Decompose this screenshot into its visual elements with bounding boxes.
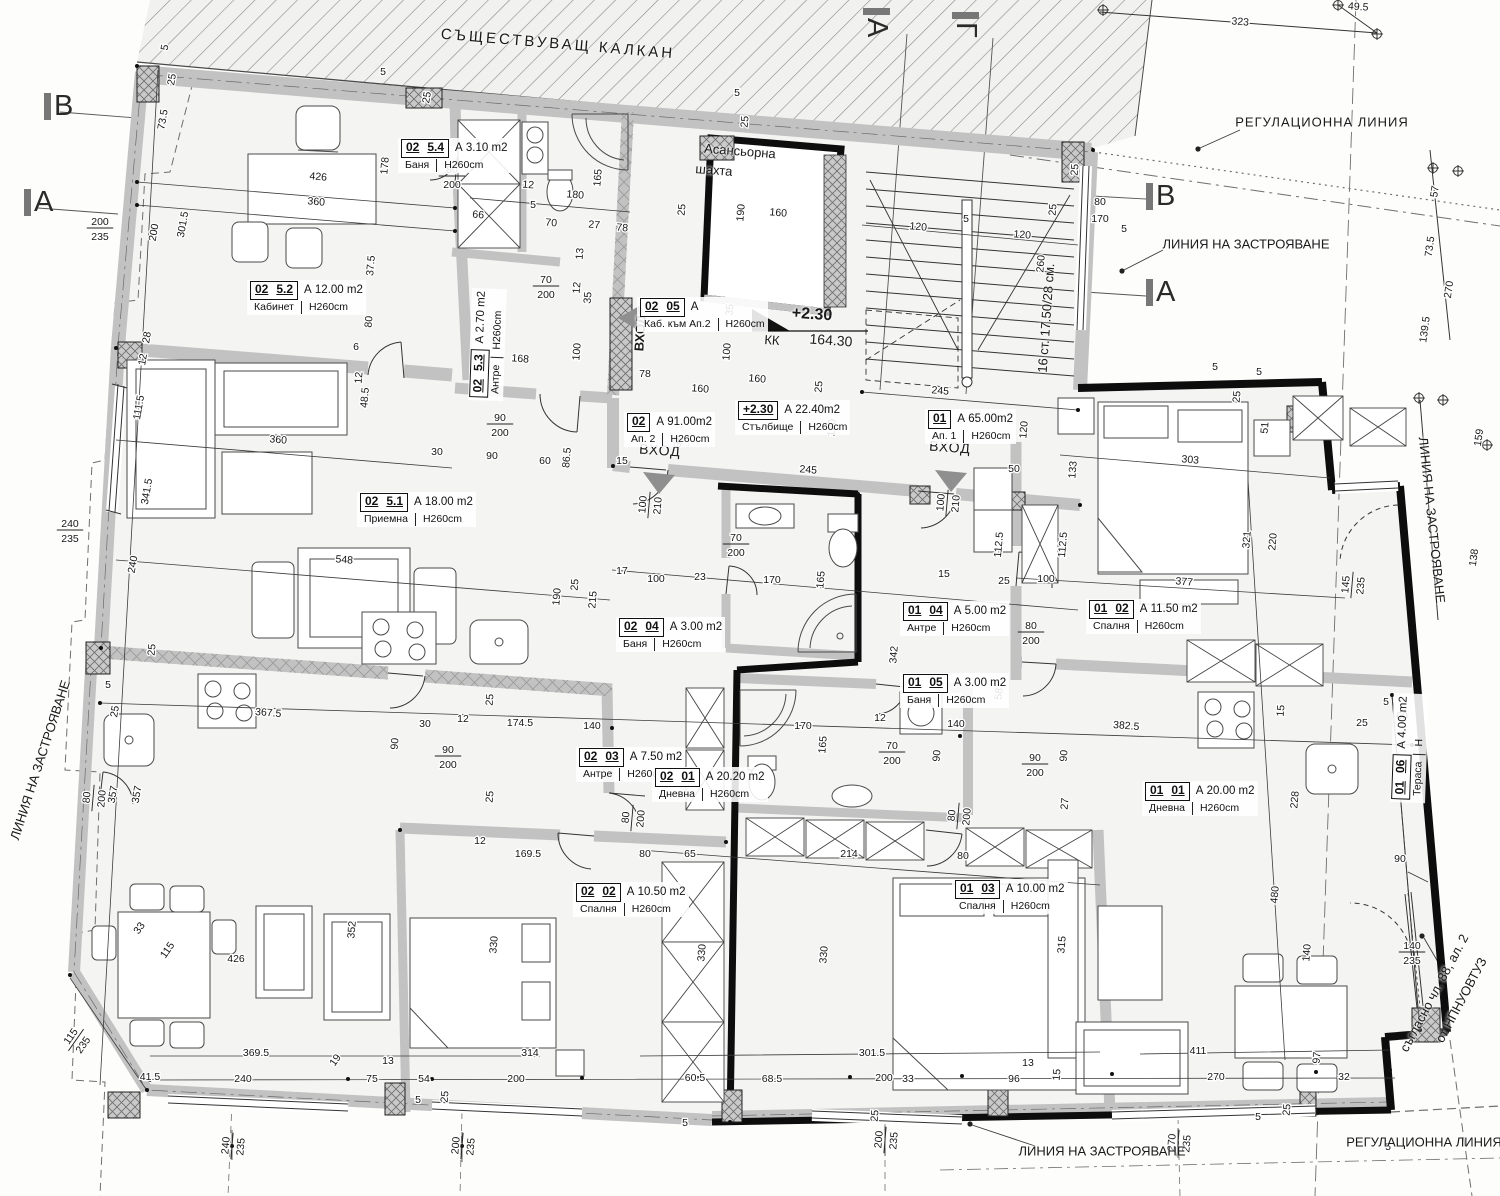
dimension-label: 240 bbox=[234, 1073, 252, 1085]
wardrobe-box bbox=[1022, 505, 1058, 583]
dimension-label: 120 bbox=[825, 418, 838, 437]
dimension-label: 377 bbox=[1175, 575, 1194, 588]
dimension-label: 25 bbox=[1356, 717, 1368, 729]
wardrobe-box bbox=[662, 942, 724, 1022]
fraction-part: 240 bbox=[219, 1136, 232, 1155]
dimension-label: 169.5 bbox=[515, 848, 541, 860]
wardrobe-box bbox=[458, 120, 520, 184]
dimension-label: 65 bbox=[684, 848, 696, 860]
dimension-label: 90 bbox=[389, 737, 402, 750]
fraction-part: 200 bbox=[449, 1136, 462, 1155]
dimension-label: 112.5 bbox=[992, 531, 1006, 558]
dimension-tick bbox=[98, 701, 102, 705]
wardrobe-box bbox=[1256, 644, 1323, 686]
dimension-label: 352 bbox=[345, 920, 358, 939]
dimension-label: 66 bbox=[472, 209, 485, 222]
fraction-part: 200 bbox=[1026, 767, 1044, 779]
dimension-label: 170 bbox=[1091, 213, 1109, 225]
dimension-label: 80 bbox=[957, 850, 969, 862]
wardrobe-box bbox=[662, 1022, 724, 1102]
dimension-tick bbox=[398, 828, 402, 832]
dimension-label: 100 bbox=[570, 342, 583, 361]
dimension-label: 139.5 bbox=[1417, 316, 1433, 344]
dimension-label: 12 bbox=[474, 835, 486, 847]
dimension-label: 140 bbox=[947, 718, 965, 730]
dimension-label: 314 bbox=[521, 1047, 539, 1059]
fraction-part: 200 bbox=[727, 547, 745, 559]
dimension-label: 382.5 bbox=[1113, 719, 1140, 733]
fraction-part: 70 bbox=[886, 740, 898, 752]
dimension-tick bbox=[430, 1077, 434, 1081]
wardrobe-box bbox=[866, 822, 924, 860]
dimension-tick bbox=[611, 464, 615, 468]
wardrobe-box bbox=[458, 184, 520, 248]
fraction-dimension: 270235 bbox=[1165, 1129, 1194, 1158]
dimension-label: 57 bbox=[1428, 185, 1442, 198]
fraction-part: 200 bbox=[91, 216, 109, 228]
dimension-label: 70 bbox=[545, 217, 558, 230]
dimension-label: 100 bbox=[1037, 573, 1055, 585]
fraction-part: 210 bbox=[651, 496, 664, 515]
fraction-part: 235 bbox=[61, 533, 79, 545]
dimension-tick bbox=[453, 229, 457, 233]
dimension-label: 369.5 bbox=[243, 1047, 269, 1059]
dimension-label: 25 bbox=[676, 203, 689, 216]
dimension-label: 548 bbox=[335, 553, 354, 566]
dimension-label: 140 bbox=[1300, 943, 1313, 962]
dimension-label: 112.5 bbox=[1056, 531, 1070, 558]
dimension-label: 90 bbox=[1394, 853, 1406, 865]
dimension-label: 12 bbox=[136, 353, 150, 367]
dimension-label: 97 bbox=[672, 435, 685, 448]
wardrobe-box bbox=[1187, 640, 1255, 682]
dimension-label: 25 bbox=[146, 643, 159, 656]
dimension-label: 54 bbox=[418, 1073, 430, 1085]
dimension-label: 25 bbox=[739, 115, 752, 128]
dimension-tick bbox=[860, 390, 864, 394]
wardrobe-box bbox=[686, 688, 724, 748]
dimension-label: 25 bbox=[813, 380, 826, 393]
dimension-tick bbox=[1078, 503, 1082, 507]
fraction-part: 145 bbox=[1339, 575, 1352, 594]
dimension-label: 25 bbox=[165, 73, 179, 87]
dimension-label: 58 bbox=[993, 687, 1006, 700]
dimension-label: 160 bbox=[769, 206, 788, 219]
dimension-label: 90 bbox=[486, 450, 498, 462]
fraction-part: 235 bbox=[1403, 955, 1421, 967]
fraction-part: 80 bbox=[620, 811, 633, 824]
dimension-tick bbox=[68, 973, 72, 977]
dimension-label: 25 bbox=[420, 91, 434, 105]
dimension-label: 28 bbox=[140, 331, 154, 345]
fraction-part: 235 bbox=[234, 1137, 247, 1156]
dimension-label: 25 bbox=[484, 790, 497, 803]
dimension-tick bbox=[724, 486, 728, 490]
floor-plan-page: 2002352402358020070200902008020010021010… bbox=[0, 0, 1500, 1196]
dimension-label: 23 bbox=[694, 571, 706, 583]
fraction-part: 200 bbox=[883, 755, 901, 767]
fraction-part: 140 bbox=[1403, 940, 1421, 952]
dimension-label: 220 bbox=[1266, 532, 1279, 551]
elevator-shaft bbox=[704, 138, 846, 312]
fraction-part: 200 bbox=[443, 179, 461, 191]
dimension-label: 6 bbox=[353, 341, 359, 353]
dimension-label: 41.5 bbox=[140, 1071, 161, 1083]
dimension-label: 321 bbox=[1240, 530, 1253, 549]
dimension-label: 68.5 bbox=[762, 1073, 783, 1085]
dimension-label: 168 bbox=[511, 352, 530, 365]
dimension-label: 5 bbox=[1212, 361, 1218, 373]
dimension-label: 245 bbox=[931, 384, 950, 397]
fraction-part: 200 bbox=[537, 289, 555, 301]
fraction-part: 200 bbox=[439, 759, 457, 771]
dimension-label: 270 bbox=[1207, 1071, 1225, 1083]
fraction-part: 100 bbox=[934, 493, 947, 512]
dimension-label: 170 bbox=[794, 720, 812, 732]
dimension-label: 13 bbox=[1022, 1057, 1034, 1069]
fraction-part: 200 bbox=[491, 427, 509, 439]
dimension-label: 140 bbox=[583, 720, 601, 732]
wardrobe-box bbox=[1293, 396, 1343, 440]
dimension-tick bbox=[1110, 1072, 1114, 1076]
dimension-label: 200 bbox=[507, 1073, 525, 1085]
dimension-label: 60.5 bbox=[685, 1072, 706, 1084]
dimension-label: 13 bbox=[382, 1055, 394, 1067]
dimension-label: 165 bbox=[591, 168, 604, 187]
dimension-label: 33 bbox=[902, 1073, 914, 1085]
dimension-label: 215 bbox=[586, 590, 599, 609]
dimension-label: 5 bbox=[1121, 223, 1127, 235]
fraction-dimension: 240235 bbox=[57, 518, 83, 545]
dimension-label: 27 bbox=[588, 219, 601, 232]
dimension-label: 160 bbox=[691, 382, 710, 395]
fraction-part: 80 bbox=[946, 809, 959, 822]
dimension-tick bbox=[848, 1075, 852, 1079]
dimension-label: 80 bbox=[639, 848, 651, 860]
dimension-tick bbox=[1445, 1030, 1449, 1034]
dimension-tick bbox=[610, 726, 614, 730]
dimension-tick bbox=[135, 180, 139, 184]
dimension-label: 170 bbox=[763, 574, 781, 586]
dimension-label: 360 bbox=[269, 433, 288, 446]
dimension-label: 5 bbox=[682, 1117, 688, 1129]
dimension-tick bbox=[99, 646, 103, 650]
dimension-label: 51 bbox=[1259, 421, 1272, 434]
dimension-label: 12 bbox=[522, 179, 535, 192]
dimension-label: 330 bbox=[487, 935, 500, 954]
dimension-label: 5 bbox=[105, 679, 111, 691]
dimension-label: 214 bbox=[840, 848, 858, 860]
dimension-label: 5 bbox=[1255, 1111, 1261, 1123]
dimension-label: 13 bbox=[574, 247, 587, 260]
dimension-label: 27 bbox=[1059, 797, 1072, 810]
fraction-part: 100 bbox=[636, 495, 649, 514]
dimension-tick bbox=[145, 1088, 149, 1092]
dimension-label: 160 bbox=[748, 372, 767, 385]
fraction-part: 80 bbox=[1025, 620, 1037, 632]
dimension-label: 90 bbox=[1058, 749, 1071, 762]
dimension-label: 190 bbox=[734, 203, 747, 222]
fraction-part: 200 bbox=[960, 807, 973, 826]
dimension-label: 12 bbox=[353, 371, 366, 384]
dimension-tick bbox=[958, 734, 962, 738]
dimension-label: 245 bbox=[799, 463, 818, 476]
fraction-part: 200 bbox=[634, 809, 647, 828]
dimension-label: 120 bbox=[909, 220, 928, 233]
dimension-label: 100 bbox=[647, 573, 665, 585]
fraction-part: 200 bbox=[1022, 635, 1040, 647]
dimension-label: 35 bbox=[724, 303, 737, 316]
dimension-label: 15 bbox=[616, 455, 628, 467]
dimension-tick bbox=[453, 206, 457, 210]
wardrobe-box bbox=[746, 818, 804, 856]
dimension-tick bbox=[580, 1076, 584, 1080]
dimension-label: 12 bbox=[874, 712, 886, 724]
dimension-label: 73.5 bbox=[1423, 235, 1438, 257]
dimension-label: 120 bbox=[1017, 420, 1030, 439]
dimension-label: 120 bbox=[1013, 228, 1032, 241]
dimension-label: 25 bbox=[439, 1090, 452, 1103]
dimension-tick bbox=[724, 840, 728, 844]
fraction-part: 240 bbox=[61, 518, 79, 530]
wardrobe-box bbox=[966, 828, 1024, 866]
dimension-label: 426 bbox=[227, 953, 245, 965]
dimension-label: 174.5 bbox=[507, 717, 533, 729]
dimension-label: 5 bbox=[380, 66, 386, 78]
dimension-label: 49.5 bbox=[1348, 0, 1369, 13]
wardrobe-box bbox=[686, 750, 724, 810]
fraction-part: 90 bbox=[494, 412, 506, 424]
dimension-label: 178 bbox=[378, 156, 391, 175]
dimension-label: 25 bbox=[998, 575, 1010, 587]
dimension-label: 330 bbox=[695, 943, 708, 962]
dimension-label: 180 bbox=[566, 188, 585, 201]
wardrobe-box bbox=[1350, 408, 1406, 446]
dimension-label: 5 bbox=[1383, 696, 1389, 708]
dimension-label: 25 bbox=[1069, 163, 1082, 176]
dimension-label: 78 bbox=[616, 222, 629, 235]
dimension-label: 270 bbox=[1442, 280, 1456, 299]
dimension-label: 17 bbox=[616, 565, 628, 577]
dimension-tick bbox=[728, 1120, 732, 1124]
dimension-label: 426 bbox=[309, 170, 328, 183]
dimension-label: 133 bbox=[1066, 460, 1079, 479]
dimension-label: 30 bbox=[431, 446, 443, 458]
dimension-label: 159 bbox=[1472, 428, 1486, 447]
dimension-label: 5 bbox=[415, 1094, 421, 1106]
dimension-tick bbox=[1410, 743, 1414, 747]
fraction-part: 235 bbox=[91, 231, 109, 243]
dimension-label: 190 bbox=[550, 587, 563, 606]
dimension-label: 228 bbox=[1288, 790, 1301, 809]
fraction-part: 80 bbox=[81, 791, 94, 804]
dimension-label: 330 bbox=[817, 945, 830, 964]
dimension-label: 5 bbox=[734, 87, 740, 99]
dimension-tick bbox=[1091, 148, 1095, 152]
dimension-label: 323 bbox=[1231, 15, 1249, 28]
dimension-label: 80 bbox=[363, 315, 376, 328]
dimension-label: 90 bbox=[931, 749, 944, 762]
dimension-label: 367.5 bbox=[255, 706, 282, 720]
dimension-label: 25 bbox=[1231, 390, 1244, 403]
dimension-tick bbox=[960, 1074, 964, 1078]
dimension-label: 165 bbox=[816, 735, 829, 754]
dimension-tick bbox=[1388, 1068, 1392, 1072]
dimension-tick bbox=[135, 64, 139, 68]
dimension-label: 32 bbox=[1338, 1071, 1350, 1083]
dimension-label: 315 bbox=[1055, 935, 1068, 954]
dimension-label: 5 bbox=[1256, 366, 1262, 378]
dimension-label: 80 bbox=[1094, 196, 1106, 208]
dimension-label: 15 bbox=[1275, 704, 1288, 717]
dimension-label: 15 bbox=[938, 568, 950, 580]
fraction-part: 200 bbox=[872, 1130, 885, 1149]
fraction-part: 270 bbox=[1165, 1133, 1178, 1152]
fraction-part: 210 bbox=[949, 494, 962, 513]
dimension-label: 35 bbox=[582, 291, 595, 304]
dimension-label: 5 bbox=[530, 199, 536, 211]
dimension-label: 5 bbox=[1385, 1141, 1391, 1153]
dimension-label: 60 bbox=[539, 455, 551, 467]
dimension-label: 48.5 bbox=[358, 387, 372, 409]
dimension-tick bbox=[346, 1077, 350, 1081]
fraction-dimension: 200235 bbox=[872, 1126, 901, 1155]
dimension-label: 360 bbox=[307, 195, 326, 208]
dimension-label: 303 bbox=[1181, 453, 1200, 466]
dimension-label: 200 bbox=[875, 1072, 893, 1084]
dimension-label: 96 bbox=[1008, 1073, 1020, 1085]
dimension-label: 97 bbox=[1311, 1051, 1324, 1064]
dimension-label: 138 bbox=[1467, 548, 1481, 567]
dimension-label: 5 bbox=[963, 213, 969, 225]
fraction-part: 235 bbox=[464, 1137, 477, 1156]
dimension-label: 25 bbox=[569, 578, 582, 591]
dimension-label: 15 bbox=[1051, 1068, 1064, 1081]
dimension-label: 60 bbox=[1396, 710, 1408, 722]
dimension-label: 75 bbox=[366, 1073, 378, 1085]
dimension-label: 25 bbox=[1281, 1103, 1294, 1116]
dimension-tick bbox=[114, 346, 118, 350]
dimension-label: 342 bbox=[887, 645, 900, 664]
dimension-label: 30 bbox=[419, 718, 431, 730]
fraction-part: 90 bbox=[1029, 752, 1041, 764]
dimension-label: 25 bbox=[108, 705, 122, 719]
dimension-label: 86.5 bbox=[560, 447, 574, 469]
fraction-part: 70 bbox=[540, 274, 552, 286]
fraction-part: 70 bbox=[730, 532, 742, 544]
dimension-tick bbox=[135, 203, 139, 207]
dimension-label: 12 bbox=[457, 713, 469, 725]
fraction-part: 235 bbox=[1354, 576, 1367, 595]
dimension-label: 480 bbox=[1268, 885, 1281, 904]
dimension-label: 100 bbox=[720, 342, 733, 361]
fraction-part: 80 bbox=[446, 164, 458, 176]
fraction-part: 235 bbox=[887, 1131, 900, 1150]
dimension-label: 78 bbox=[639, 368, 651, 380]
fraction-part: 235 bbox=[1180, 1134, 1193, 1153]
dimension-tick bbox=[1076, 408, 1080, 412]
dimension-label: 165 bbox=[814, 570, 827, 589]
dimension-tick bbox=[1314, 1070, 1318, 1074]
dimension-label: 50 bbox=[1008, 463, 1020, 475]
floor-plan-drawing: 2002352402358020070200902008020010021010… bbox=[0, 0, 1500, 1196]
dimension-label: 25 bbox=[869, 1109, 882, 1122]
dimension-tick bbox=[1418, 1028, 1422, 1032]
dimension-label: 25 bbox=[1047, 203, 1060, 216]
dimension-label: 301.5 bbox=[859, 1047, 885, 1059]
dimension-label: 411 bbox=[1190, 1045, 1207, 1057]
fraction-part: 90 bbox=[442, 744, 454, 756]
dimension-tick bbox=[856, 492, 860, 496]
dimension-label: 25 bbox=[484, 693, 497, 706]
fraction-dimension: 200235 bbox=[87, 216, 113, 243]
dimension-label: 260 bbox=[1034, 254, 1047, 273]
dimension-label: 37.5 bbox=[364, 255, 378, 277]
dimension-tick bbox=[1390, 693, 1394, 697]
fraction-dimension: 115235 bbox=[59, 1022, 96, 1059]
wardrobe-box bbox=[662, 862, 724, 942]
